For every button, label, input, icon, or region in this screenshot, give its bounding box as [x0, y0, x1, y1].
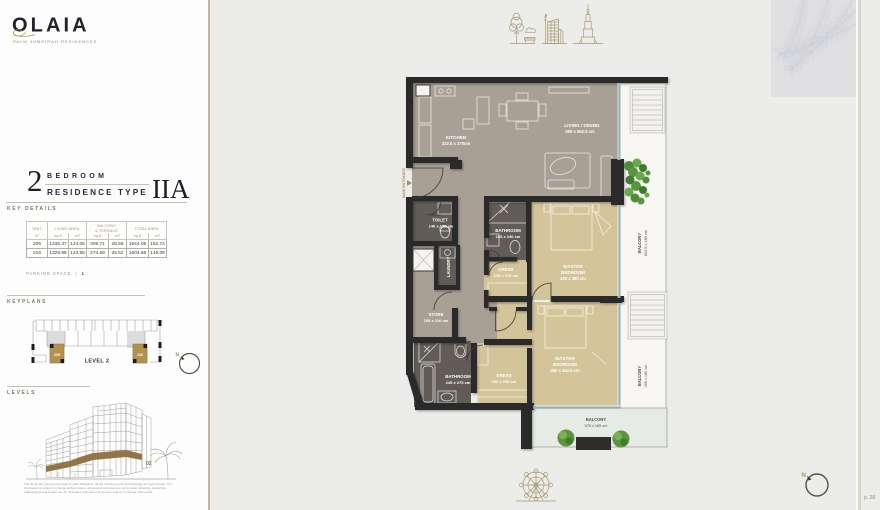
svg-text:495 x 160 cm: 495 x 160 cm: [644, 365, 648, 388]
svg-text:190 x 240 cm: 190 x 240 cm: [492, 379, 517, 384]
svg-text:MASTER: MASTER: [555, 356, 575, 361]
svg-text:575 x 165 cm: 575 x 165 cm: [585, 424, 608, 428]
svg-text:602.5 x 180 cm: 602.5 x 180 cm: [644, 230, 648, 256]
svg-text:TOILET: TOILET: [432, 218, 448, 223]
svg-text:216: 216: [137, 353, 143, 357]
svg-text:N: N: [176, 353, 180, 359]
svg-text:OLAIA: OLAIA: [12, 15, 90, 37]
svg-text:BATHROOM: BATHROOM: [495, 228, 521, 233]
svg-text:MAIN ENTRANCE: MAIN ENTRANCE: [402, 167, 406, 198]
svg-text:N: N: [802, 473, 806, 479]
svg-text:DRESS: DRESS: [496, 373, 511, 378]
svg-text:245 x 275 cm: 245 x 275 cm: [446, 380, 471, 385]
svg-text:STORE: STORE: [428, 312, 443, 317]
svg-text:MASTER: MASTER: [563, 264, 583, 269]
svg-text:480 x 442.5 cm: 480 x 442.5 cm: [550, 368, 580, 373]
svg-text:595 x 562.5 cm: 595 x 562.5 cm: [565, 129, 595, 134]
svg-text:DRESS: DRESS: [498, 267, 513, 272]
svg-text:LIVING / DINING: LIVING / DINING: [564, 123, 600, 128]
svg-text:KITCHEN: KITCHEN: [446, 135, 467, 140]
svg-text:205: 205: [54, 353, 60, 357]
svg-text:BALCONY: BALCONY: [637, 233, 642, 254]
svg-text:LAUNDRY: LAUNDRY: [446, 257, 451, 278]
svg-text:BATHROOM: BATHROOM: [445, 374, 471, 379]
svg-text:BALCONY: BALCONY: [637, 366, 642, 387]
svg-text:BALCONY: BALCONY: [586, 417, 607, 422]
svg-text:02: 02: [146, 461, 152, 467]
svg-text:322.5 x 270cm: 322.5 x 270cm: [442, 141, 470, 146]
svg-text:146 x 155 cm: 146 x 155 cm: [429, 224, 454, 229]
svg-text:155 x 210 cm: 155 x 210 cm: [424, 318, 449, 323]
svg-text:145 x 170 cm: 145 x 170 cm: [494, 273, 519, 278]
svg-text:165 x 240 cm: 165 x 240 cm: [496, 234, 521, 239]
svg-text:LEVEL 2: LEVEL 2: [85, 359, 110, 365]
svg-text:429 x 380 cm: 429 x 380 cm: [560, 276, 586, 281]
svg-text:BEDROOM: BEDROOM: [561, 270, 585, 275]
svg-text:BEDROOM: BEDROOM: [553, 362, 577, 367]
